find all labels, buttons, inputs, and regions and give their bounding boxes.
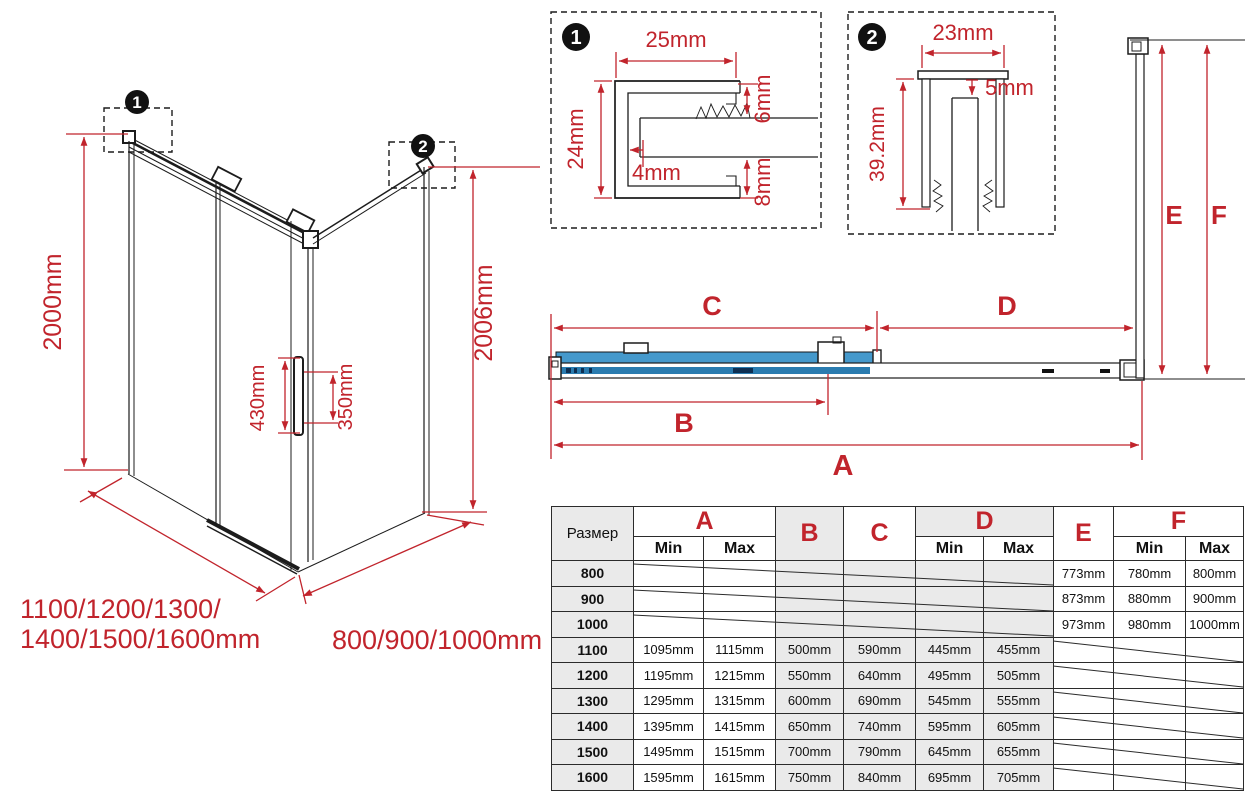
gasket-seal-right (983, 180, 993, 212)
dimensions-table: Размер A B C D E F Min Max Min Max Min M… (551, 506, 1244, 791)
gasket-seal-left (933, 180, 943, 212)
dim-2000mm-label: 2000mm (39, 253, 67, 350)
gasket-seal (696, 103, 750, 119)
dim-25mm-label: 25mm (645, 27, 706, 52)
dim-2006mm-label: 2006mm (470, 264, 498, 361)
table-row: 15001495mm1515mm700mm790mm645mm655mm (552, 739, 1244, 765)
roller-carriage (624, 343, 648, 353)
detail-2-number: 2 (866, 27, 877, 49)
shower-enclosure-spec-sheet: 1 2 2000mm 430mm 350mm 2006mm 1100/1200/… (0, 0, 1246, 796)
col-header-d: D (916, 507, 1054, 537)
dim-23mm-label: 23mm (932, 20, 993, 45)
plan-view: C D B A E F (549, 38, 1245, 482)
dim-39.2mm-label: 39.2mm (866, 106, 889, 182)
subheader-d-max: Max (984, 537, 1054, 561)
dim-a-label: A (833, 450, 854, 482)
table-row: 1000973mm980mm1000mm (552, 612, 1244, 638)
dim-b-label: B (674, 408, 694, 438)
subheader-a-min: Min (634, 537, 704, 561)
col-header-b: B (776, 507, 844, 561)
size-table: Размер A B C D E F Min Max Min Max Min M… (551, 506, 1243, 791)
dim-8mm-label: 8mm (750, 158, 775, 207)
dim-430mm-label: 430mm (247, 365, 269, 432)
dim-350mm-label: 350mm (335, 364, 357, 431)
dim-6mm-label: 6mm (750, 75, 775, 124)
side-panel-plan (1136, 54, 1144, 378)
dim-4mm-label: 4mm (632, 160, 681, 185)
dim-d-label: D (997, 291, 1017, 321)
subheader-a-max: Max (704, 537, 776, 561)
table-row: 11001095mm1115mm500mm590mm445mm455mm (552, 637, 1244, 663)
table-row: 16001595mm1615mm750mm840mm695mm705mm (552, 765, 1244, 791)
col-header-a: A (634, 507, 776, 537)
table-row: 12001195mm1215mm550mm640mm495mm505mm (552, 663, 1244, 689)
dim-width-label-line1: 1100/1200/1300/ (20, 594, 221, 624)
dim-5mm-label: 5mm (985, 75, 1034, 100)
detail-1-wall-profile: 1 25mm 24mm 6mm 8mm 4mm (551, 12, 821, 228)
col-header-e: E (1054, 507, 1114, 561)
marker-2-number: 2 (418, 137, 427, 156)
dim-width-label-line2: 1400/1500/1600mm (20, 624, 260, 654)
dim-f-label: F (1211, 200, 1227, 230)
fixed-panel-glass (556, 367, 870, 374)
door-bottom-rail (207, 520, 299, 569)
table-row: 14001395mm1415mm650mm740mm595mm605mm (552, 714, 1244, 740)
corner-bracket (303, 231, 318, 248)
table-row: 13001295mm1315mm600mm690mm545mm555mm (552, 688, 1244, 714)
subheader-f-max: Max (1186, 537, 1244, 561)
door-handle (294, 357, 303, 435)
dim-e-label: E (1165, 200, 1182, 230)
profile-left-wall (922, 79, 930, 207)
dim-c-label: C (702, 291, 722, 321)
table-row: 800773mm780mm800mm (552, 561, 1244, 587)
dim-depth-label: 800/900/1000mm (332, 625, 542, 655)
detail-1-number: 1 (570, 27, 581, 49)
detail-2-track-profile: 2 23mm 5mm 39.2mm (848, 12, 1055, 234)
col-header-c: C (844, 507, 916, 561)
marker-1-number: 1 (132, 93, 141, 112)
subheader-d-min: Min (916, 537, 984, 561)
col-header-f: F (1114, 507, 1244, 537)
subheader-f-min: Min (1114, 537, 1186, 561)
col-header-size: Размер (552, 507, 634, 561)
table-row: 900873mm880mm900mm (552, 586, 1244, 612)
dim-24mm-label: 24mm (563, 108, 588, 169)
perspective-view: 1 2 2000mm 430mm 350mm 2006mm 1100/1200/… (20, 90, 542, 655)
